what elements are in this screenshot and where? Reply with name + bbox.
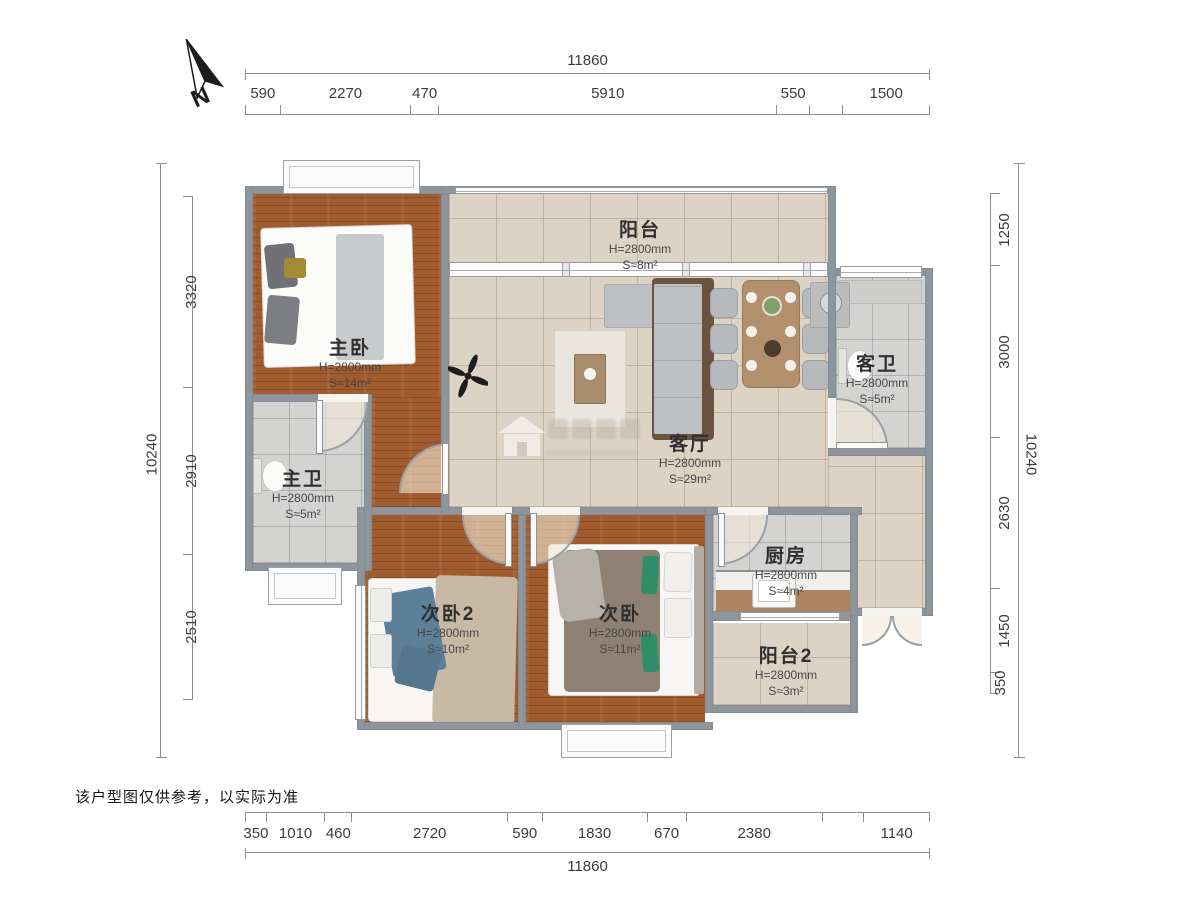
dimension-segment: 2380: [687, 813, 823, 822]
dimension-left-segments: 332029102510: [172, 196, 193, 700]
bedroom-bay-window: [561, 724, 672, 758]
door-leaf: [530, 513, 537, 567]
room-area: S≈5m²: [233, 507, 373, 523]
room-height: H=2800mm: [550, 626, 690, 642]
dimension-segment: 550: [777, 105, 809, 114]
room-label-balcony: 阳台 H=2800mm S≈8m²: [570, 215, 710, 273]
dimension-segment: 1830: [543, 813, 648, 822]
room-name: 主卧: [280, 333, 420, 360]
wall: [828, 448, 933, 456]
room-label-bedroom2: 次卧2 H=2800mm S≈10m²: [378, 599, 518, 657]
room-label-master-bedroom: 主卧 H=2800mm S≈14m²: [280, 333, 420, 391]
entry-door-swing-arc: [862, 616, 892, 646]
kitchen-service-window: [740, 612, 840, 621]
door-opening: [318, 394, 368, 402]
dimension-segment: 1010: [267, 813, 325, 822]
dimension-segment-label: 1830: [578, 825, 611, 842]
dimension-segment: 350: [245, 813, 267, 822]
dimension-bottom-total: 11860: [245, 858, 930, 875]
balcony-window: [455, 187, 828, 194]
dimension-segment: 590: [508, 813, 543, 822]
room-height: H=2800mm: [233, 491, 373, 507]
dimension-segment-label: 1140: [880, 825, 912, 842]
plate: [746, 326, 757, 337]
window-post: [803, 262, 811, 277]
room-label-master-bathroom: 主卫 H=2800mm S≈5m²: [233, 464, 373, 522]
room-name: 厨房: [716, 541, 856, 568]
dimension-left-total: 10240: [144, 420, 161, 490]
dimension-segment: 3320: [183, 196, 192, 388]
room-height: H=2800mm: [716, 668, 856, 684]
dimension-segment-label: 1250: [996, 213, 1013, 246]
room-label-balcony2: 阳台2 H=2800mm S≈3m²: [716, 641, 856, 699]
dimension-segment-label: 350: [243, 825, 268, 842]
dimension-top-total: 11860: [245, 52, 930, 69]
room-area: S≈5m²: [807, 392, 947, 408]
room-height: H=2800mm: [807, 376, 947, 392]
dimension-segment-label: 670: [654, 825, 679, 842]
room-height: H=2800mm: [570, 242, 710, 258]
accent-pillow: [641, 556, 659, 595]
door-leaf: [836, 442, 888, 449]
pillow: [663, 552, 692, 593]
dining-chair: [710, 324, 738, 354]
wall: [925, 268, 933, 616]
dimension-segment-label: 2910: [183, 454, 200, 487]
dimension-segment-label: 350: [992, 670, 1009, 695]
dimension-segment-label: 1450: [996, 614, 1013, 647]
dimension-bottom-segments: 35010104602720590183067023801140: [245, 812, 930, 835]
wall: [580, 507, 705, 515]
entry-door-swing-arc: [892, 616, 922, 646]
table-decor: [584, 368, 596, 380]
sofa-chaise: [604, 284, 656, 328]
wall: [512, 507, 530, 515]
dimension-segment: 350: [991, 673, 1000, 694]
room-area: S≈3m²: [716, 684, 856, 700]
room-height: H=2800mm: [716, 568, 856, 584]
room-name: 主卫: [233, 464, 373, 491]
dimension-segment: 1140: [864, 813, 930, 822]
guest-bathroom-window: [840, 266, 922, 278]
dimension-segment-label: 2270: [329, 85, 362, 102]
dimension-segment: 5910: [439, 105, 777, 114]
room-area: S≈14m²: [280, 376, 420, 392]
dimension-segment: 460: [325, 813, 352, 822]
door-leaf: [316, 400, 323, 454]
dimension-segment-label: 3000: [996, 335, 1013, 368]
room-label-kitchen: 厨房 H=2800mm S≈4m²: [716, 541, 856, 599]
master-bathroom-bay-window: [268, 567, 342, 605]
room-area: S≈8m²: [570, 258, 710, 274]
room-name: 阳台: [570, 215, 710, 242]
centerpiece: [764, 340, 781, 357]
floor-plan-page: N: [0, 0, 1200, 900]
ceiling-fan-icon: [448, 354, 488, 398]
dimension-segment: 2270: [281, 105, 412, 114]
door-leaf: [505, 513, 512, 567]
wall: [441, 493, 449, 515]
dimension-segment: 2510: [183, 555, 192, 700]
dimension-segment-label: 5910: [591, 85, 624, 102]
dimension-bottom-total-line: [245, 852, 930, 853]
dimension-top-segments: 590227047059105501500: [245, 92, 930, 115]
room-label-guest-bathroom: 客卫 H=2800mm S≈5m²: [807, 349, 947, 407]
dimension-segment: [810, 105, 844, 114]
room-name: 客卫: [807, 349, 947, 376]
room-name: 次卧: [550, 599, 690, 626]
dimension-segment: 2630: [991, 438, 1000, 589]
dimension-segment-label: 460: [326, 825, 351, 842]
dimension-segment-label: 3320: [183, 275, 200, 308]
flower-centerpiece: [764, 298, 780, 314]
wall: [441, 194, 449, 445]
room-height: H=2800mm: [280, 360, 420, 376]
dimension-segment: 470: [411, 105, 439, 114]
dining-chair: [710, 360, 738, 390]
dining-chair: [710, 288, 738, 318]
dimension-segment: 1500: [843, 105, 930, 114]
wall: [518, 515, 526, 730]
dimension-segment-label: 590: [250, 85, 275, 102]
dimension-right-segments: 1250300026301450350: [990, 193, 1011, 694]
dimension-segment: [823, 813, 864, 822]
dimension-segment: 590: [245, 105, 281, 114]
dimension-segment-label: 470: [412, 85, 437, 102]
plate: [746, 292, 757, 303]
dimension-segment-label: 1500: [869, 85, 902, 102]
room-name: 客厅: [620, 429, 760, 456]
plate: [785, 360, 796, 371]
window-post: [562, 262, 570, 277]
dimension-right-total: 10240: [1023, 420, 1040, 490]
room-area: S≈11m²: [550, 642, 690, 658]
dimension-segment-label: 2510: [183, 611, 200, 644]
plate: [785, 326, 796, 337]
bedroom2-window: [355, 585, 366, 720]
door-leaf: [442, 443, 449, 495]
room-name: 阳台2: [716, 641, 856, 668]
house-logo-icon: [498, 414, 546, 462]
dimension-right-total-line: [1018, 163, 1019, 758]
dimension-segment: 1250: [991, 193, 1000, 266]
door-opening: [530, 507, 580, 515]
dimension-segment: 670: [648, 813, 687, 822]
wall: [705, 515, 713, 713]
disclaimer-text: 该户型图仅供参考，以实际为准: [75, 786, 299, 807]
dimension-segment-label: 1010: [279, 825, 312, 842]
room-area: S≈4m²: [716, 584, 856, 600]
dimension-segment-label: 550: [781, 85, 806, 102]
dimension-top-total-line: [245, 73, 930, 74]
room-label-bedroom: 次卧 H=2800mm S≈11m²: [550, 599, 690, 657]
room-height: H=2800mm: [378, 626, 518, 642]
door-opening: [718, 507, 768, 515]
room-area: S≈29m²: [620, 472, 760, 488]
dimension-segment-label: 2630: [996, 497, 1013, 530]
bay-window: [283, 160, 420, 194]
dimension-segment: 2720: [352, 813, 508, 822]
entry-door-opening: [862, 608, 922, 616]
bathroom-counter: [838, 280, 922, 304]
room-label-living-room: 客厅 H=2800mm S≈29m²: [620, 429, 760, 487]
room-name: 次卧2: [378, 599, 518, 626]
dimension-segment-label: 2380: [738, 825, 771, 842]
headboard: [694, 546, 704, 694]
plate: [746, 360, 757, 371]
wall: [768, 507, 862, 515]
room-height: H=2800mm: [620, 456, 760, 472]
accent-pillow: [284, 258, 306, 278]
room-area: S≈10m²: [378, 642, 518, 658]
dimension-segment: 2910: [183, 388, 192, 555]
dimension-segment-label: 2720: [413, 825, 446, 842]
dimension-segment: 3000: [991, 266, 1000, 438]
wall: [705, 705, 858, 713]
wall: [705, 507, 718, 515]
dimension-segment-label: 590: [512, 825, 537, 842]
plate: [785, 292, 796, 303]
sofa-seats: [654, 284, 702, 434]
dimension-segment: 1450: [991, 589, 1000, 673]
